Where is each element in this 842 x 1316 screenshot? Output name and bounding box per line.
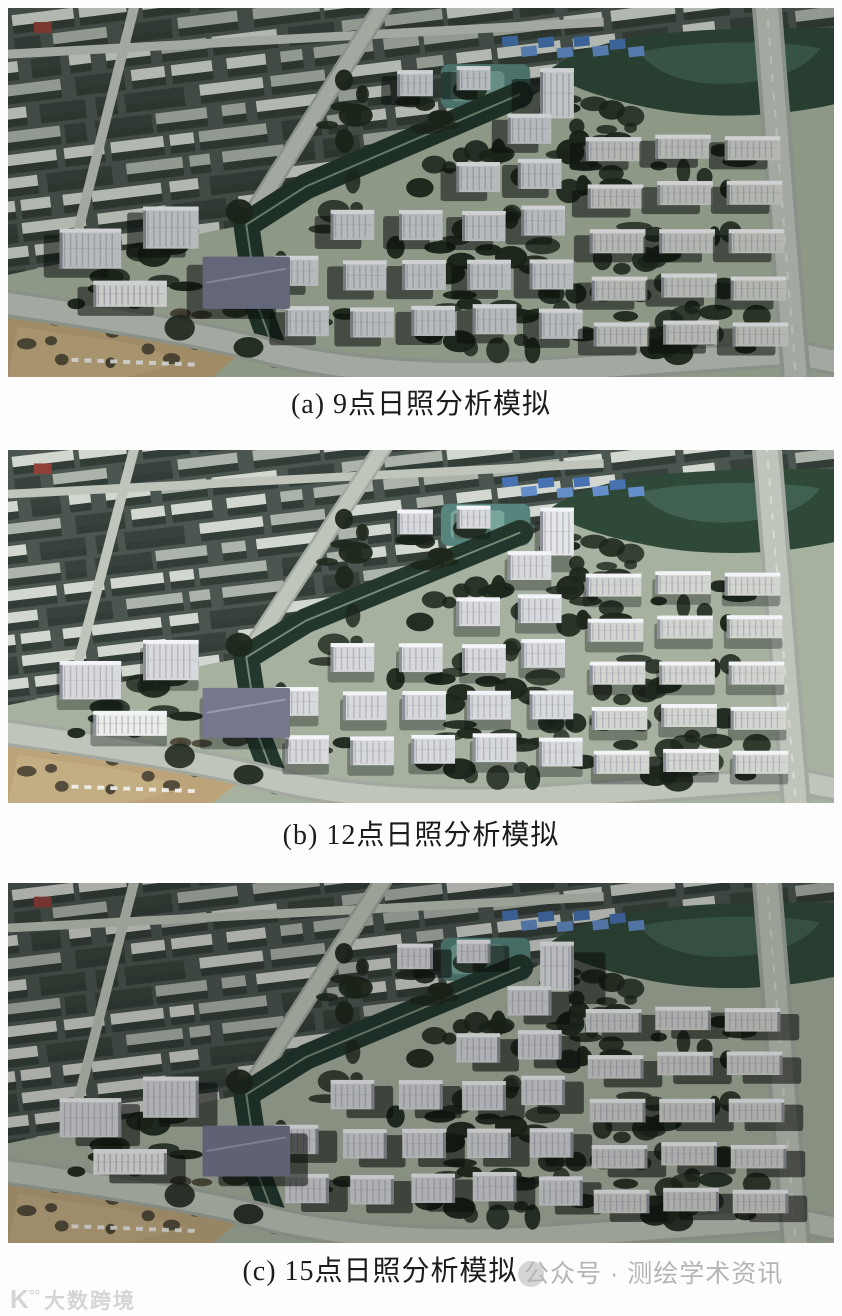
aerial-scene-3pm [8, 883, 834, 1243]
brand-watermark: K°°大数跨境 [10, 1280, 136, 1310]
brand-logo-icon: K [10, 1284, 29, 1314]
aerial-scene-9am [8, 8, 834, 377]
brand-watermark-text: 大数跨境 [44, 1290, 136, 1313]
wechat-account-watermark-text: 公众号 · 测绘学术资讯 [524, 1260, 783, 1288]
ambient-shade [8, 883, 834, 1243]
aerial-photo-9am [8, 8, 834, 377]
aerial-photo-12pm [8, 450, 834, 803]
ambient-shade [8, 8, 834, 377]
caption-12pm: (b) 12点日照分析模拟 [0, 814, 842, 858]
paper-figure-page: (a) 9点日照分析模拟 (b) 12点日照分析模拟 (c) 15点日照分析模拟… [0, 0, 842, 1316]
brand-logo-dots-icon: °° [29, 1287, 40, 1303]
caption-9am: (a) 9点日照分析模拟 [0, 383, 842, 427]
wechat-account-watermark: 公众号 · 测绘学术资讯 [524, 1257, 783, 1291]
aerial-scene-12pm [8, 450, 834, 803]
aerial-photo-3pm [8, 883, 834, 1243]
